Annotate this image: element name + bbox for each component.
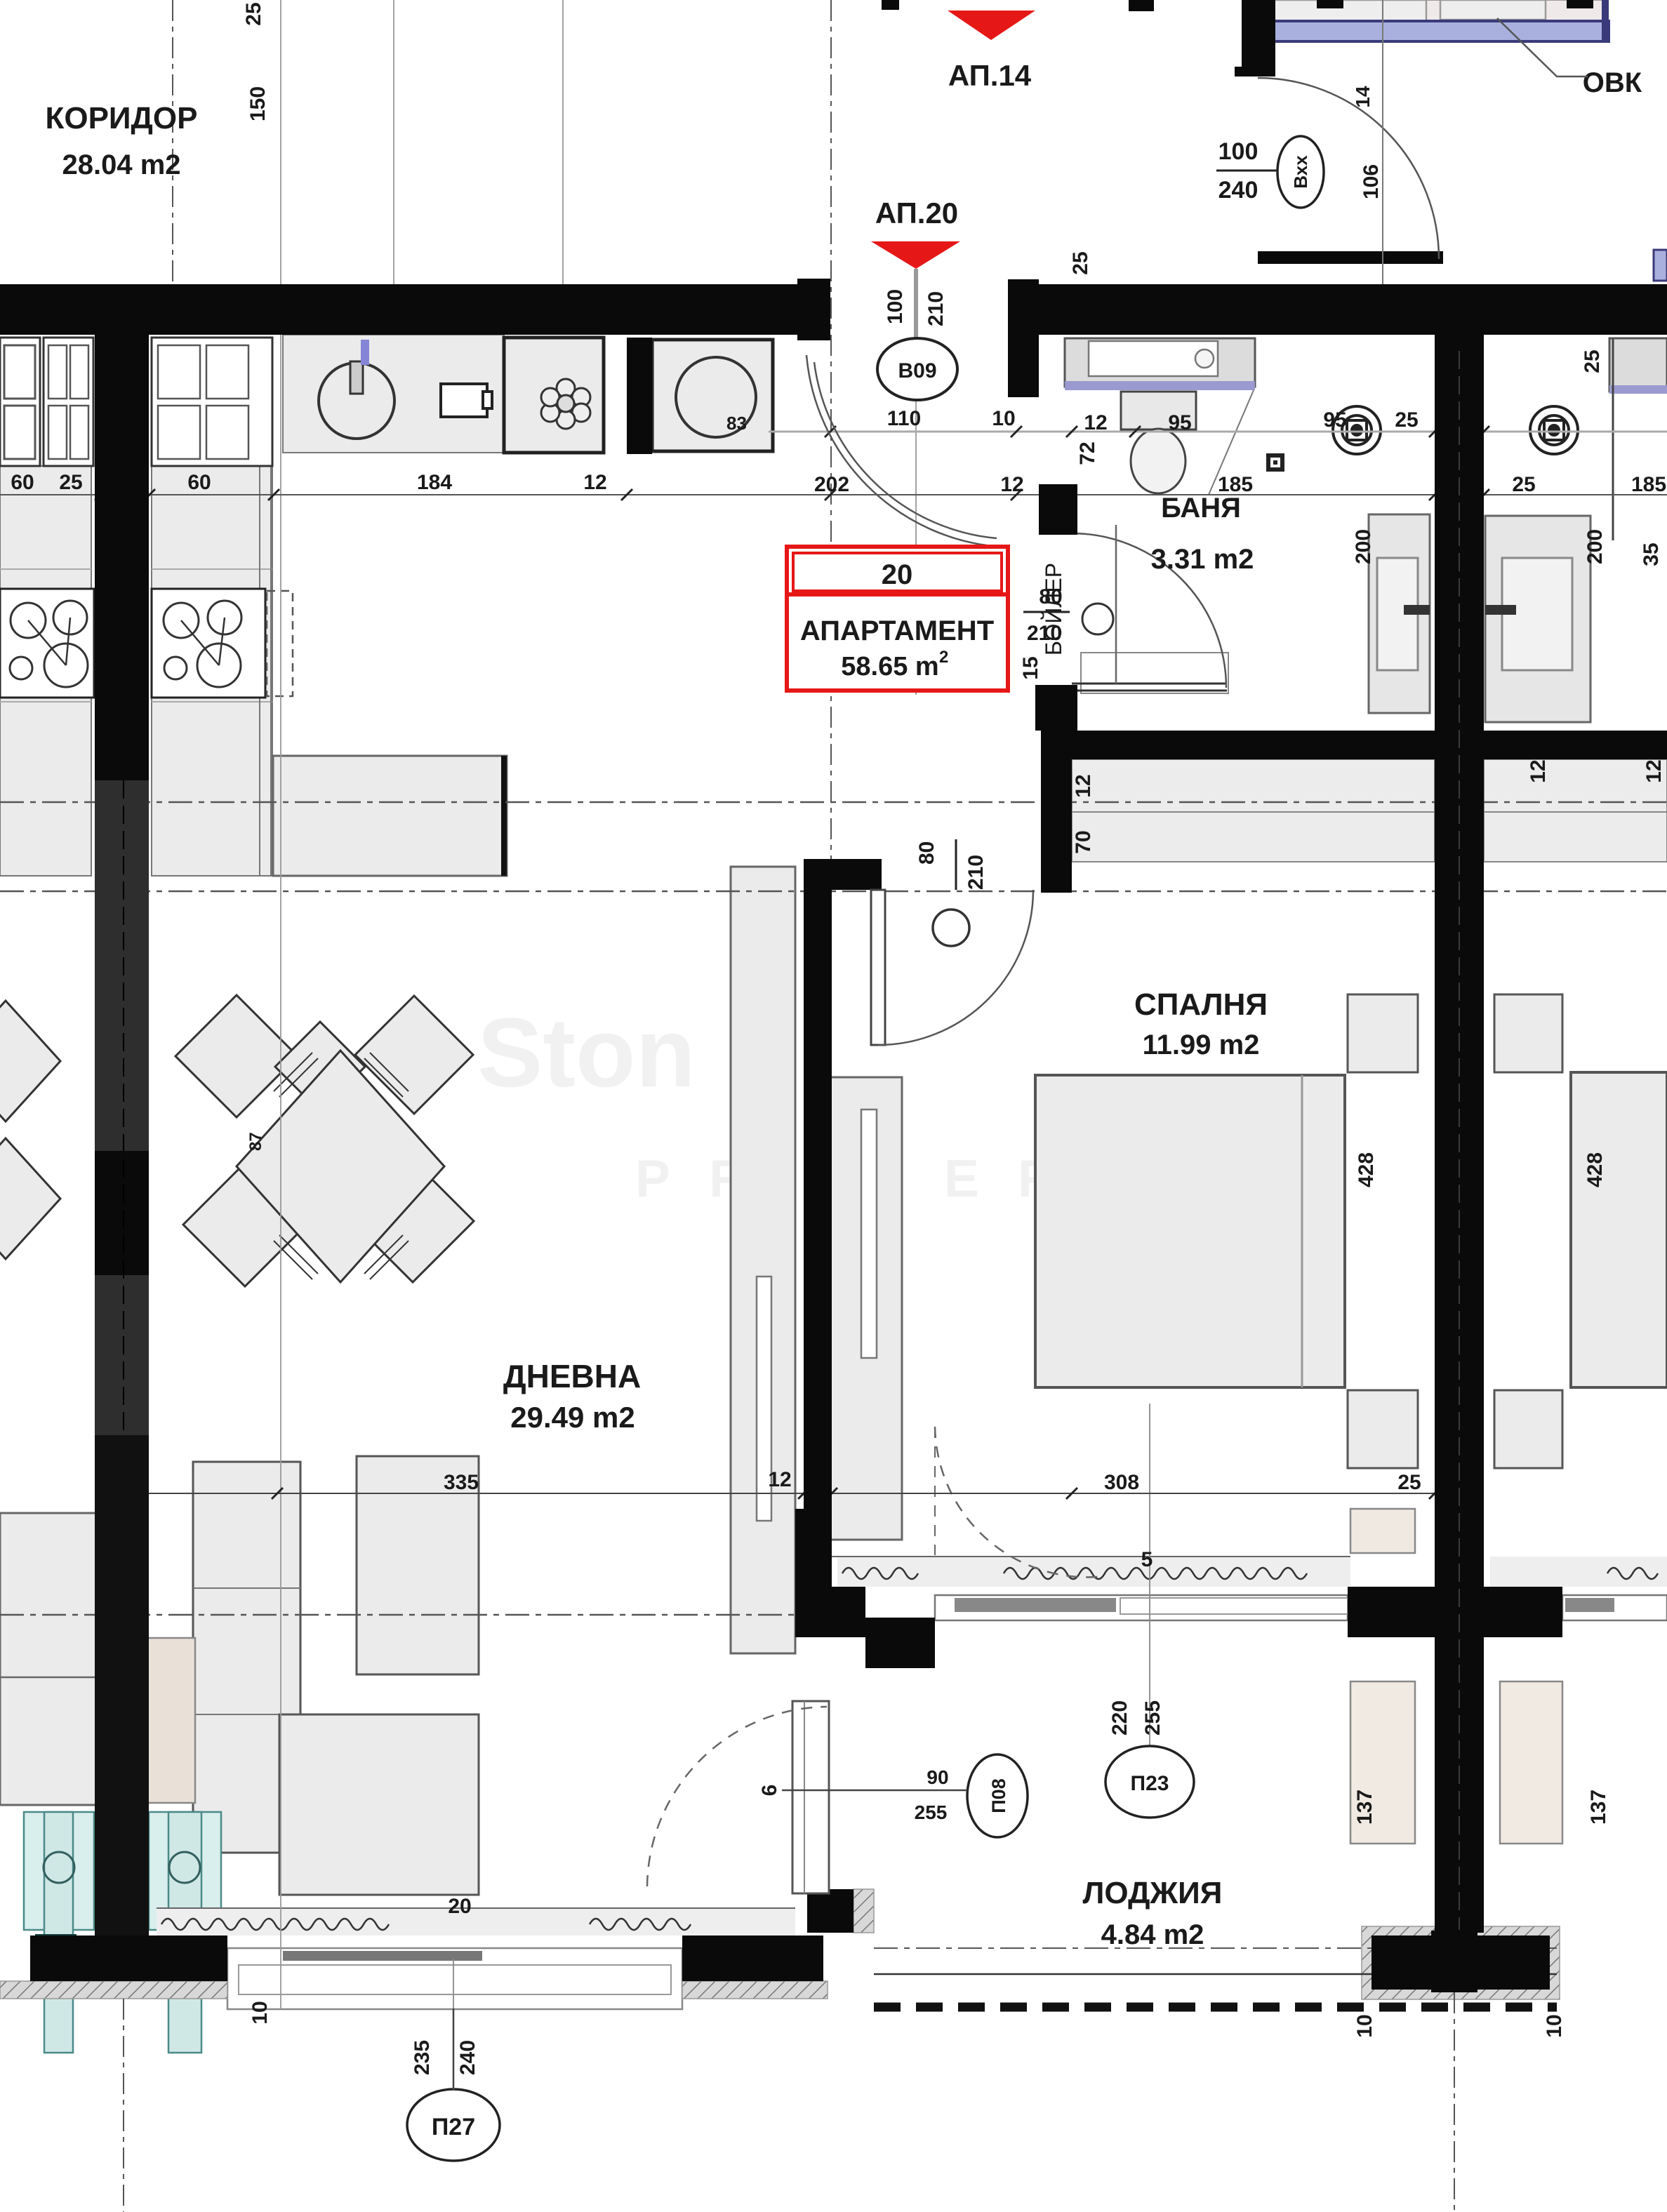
svg-text:185: 185 [1631, 473, 1666, 496]
svg-text:П08: П08 [988, 1778, 1009, 1813]
svg-text:25: 25 [59, 471, 82, 494]
svg-text:95: 95 [1168, 411, 1191, 434]
svg-text:428: 428 [1583, 1152, 1607, 1187]
svg-text:35: 35 [1640, 542, 1663, 566]
svg-text:90: 90 [927, 1766, 948, 1788]
svg-text:П27: П27 [432, 2114, 475, 2140]
svg-text:428: 428 [1355, 1152, 1378, 1187]
svg-text:ЛОДЖИЯ: ЛОДЖИЯ [1083, 1876, 1223, 1910]
svg-text:335: 335 [444, 1471, 479, 1494]
svg-text:В09: В09 [898, 359, 936, 382]
svg-text:12: 12 [1527, 759, 1550, 782]
svg-text:83: 83 [726, 413, 747, 434]
svg-text:12: 12 [1000, 473, 1023, 496]
svg-text:80: 80 [915, 841, 938, 865]
svg-text:255: 255 [915, 1801, 948, 1823]
svg-text:15: 15 [1019, 656, 1042, 679]
svg-text:12: 12 [583, 471, 606, 494]
svg-text:П23: П23 [1131, 1772, 1169, 1795]
svg-text:3.31 m2: 3.31 m2 [1151, 544, 1254, 575]
svg-text:20: 20 [448, 1895, 471, 1918]
svg-text:ОВК: ОВК [1583, 67, 1642, 98]
svg-text:25: 25 [242, 2, 265, 25]
svg-text:25: 25 [1069, 251, 1092, 274]
svg-text:10: 10 [248, 2001, 272, 2024]
svg-text:210: 210 [964, 855, 988, 890]
svg-text:4.84 m2: 4.84 m2 [1101, 1919, 1204, 1950]
svg-text:235: 235 [411, 2040, 434, 2075]
svg-text:БАНЯ: БАНЯ [1161, 493, 1241, 524]
svg-text:137: 137 [1587, 1790, 1610, 1825]
svg-text:10: 10 [1353, 2014, 1376, 2037]
svg-text:10: 10 [992, 407, 1015, 430]
svg-text:150: 150 [246, 86, 270, 121]
svg-text:11.99 m2: 11.99 m2 [1143, 1030, 1260, 1060]
svg-text:Вхх: Вхх [1290, 155, 1311, 189]
svg-text:12: 12 [768, 1468, 791, 1491]
svg-text:70: 70 [1072, 830, 1095, 853]
svg-text:255: 255 [1141, 1700, 1164, 1735]
svg-text:25: 25 [1512, 473, 1535, 496]
svg-text:10: 10 [1543, 2014, 1566, 2037]
svg-text:202: 202 [814, 473, 849, 496]
svg-text:60: 60 [187, 471, 211, 494]
svg-text:20: 20 [882, 559, 913, 590]
svg-text:110: 110 [887, 407, 921, 430]
svg-text:АП.14: АП.14 [948, 59, 1032, 92]
svg-text:6: 6 [758, 1785, 781, 1797]
svg-text:100: 100 [884, 289, 907, 324]
svg-text:106: 106 [1360, 164, 1383, 199]
svg-text:28.04 m2: 28.04 m2 [62, 149, 180, 180]
svg-text:95: 95 [1323, 408, 1346, 432]
svg-text:80: 80 [1039, 585, 1062, 608]
svg-text:КОРИДОР: КОРИДОР [46, 101, 198, 135]
svg-text:60: 60 [11, 471, 34, 494]
svg-text:220: 220 [1108, 1700, 1131, 1735]
svg-text:58.65 m: 58.65 m [841, 652, 938, 681]
svg-text:СПАЛНЯ: СПАЛНЯ [1134, 987, 1268, 1022]
svg-text:72: 72 [1076, 441, 1099, 465]
svg-text:200: 200 [1583, 529, 1607, 564]
svg-text:210: 210 [1027, 622, 1062, 645]
svg-text:29.49 m2: 29.49 m2 [510, 1401, 635, 1434]
svg-text:25: 25 [1581, 349, 1604, 373]
svg-text:12: 12 [1642, 759, 1666, 782]
svg-text:ДНЕВНА: ДНЕВНА [503, 1358, 641, 1394]
svg-text:137: 137 [1353, 1790, 1376, 1825]
svg-text:2: 2 [939, 648, 948, 667]
svg-text:87: 87 [246, 1132, 265, 1151]
svg-text:184: 184 [417, 471, 452, 494]
svg-text:12: 12 [1084, 411, 1107, 434]
svg-text:5: 5 [1141, 1548, 1153, 1571]
svg-text:240: 240 [1218, 177, 1258, 204]
svg-text:210: 210 [924, 291, 948, 326]
svg-text:200: 200 [1352, 529, 1375, 564]
svg-text:14: 14 [1352, 86, 1374, 108]
svg-text:АП.20: АП.20 [875, 196, 958, 229]
svg-text:12: 12 [1072, 774, 1095, 797]
svg-text:308: 308 [1104, 1471, 1139, 1494]
svg-text:АПАРТАМЕНТ: АПАРТАМЕНТ [800, 615, 994, 646]
svg-text:25: 25 [1397, 1471, 1421, 1494]
svg-text:Ston: Ston [477, 997, 696, 1107]
svg-text:100: 100 [1218, 138, 1258, 165]
svg-text:25: 25 [1395, 408, 1418, 432]
svg-text:240: 240 [456, 2040, 479, 2075]
